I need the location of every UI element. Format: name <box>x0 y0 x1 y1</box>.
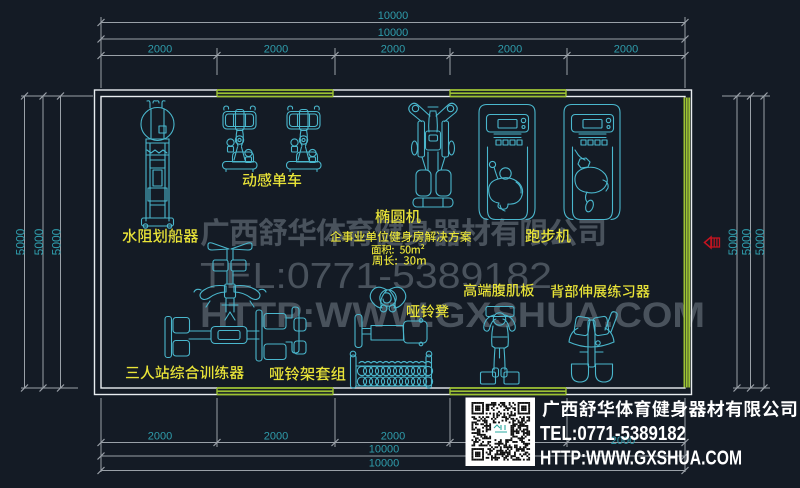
svg-text:2000: 2000 <box>498 44 522 56</box>
svg-text:10000: 10000 <box>369 444 400 456</box>
svg-text:2000: 2000 <box>614 44 638 56</box>
svg-text:5000: 5000 <box>50 228 64 255</box>
svg-text:10000: 10000 <box>378 10 409 22</box>
svg-text:2000: 2000 <box>148 431 172 443</box>
svg-text:HTTP:WWW.GXSHUA.COM: HTTP:WWW.GXSHUA.COM <box>540 448 742 470</box>
svg-text:2000: 2000 <box>381 431 405 443</box>
svg-text:2000: 2000 <box>148 44 172 56</box>
svg-text:2000: 2000 <box>264 44 288 56</box>
svg-text:5000: 5000 <box>753 228 767 255</box>
svg-text:10000: 10000 <box>369 458 400 470</box>
svg-text:5000: 5000 <box>32 228 46 255</box>
svg-text:5000: 5000 <box>740 228 754 255</box>
svg-text:2000: 2000 <box>264 431 288 443</box>
svg-text:TEL:0771-5389182: TEL:0771-5389182 <box>540 423 686 445</box>
svg-text:10000: 10000 <box>378 27 409 39</box>
svg-text:5000: 5000 <box>726 228 740 255</box>
svg-text:2000: 2000 <box>381 44 405 56</box>
svg-text:5000: 5000 <box>14 228 28 255</box>
